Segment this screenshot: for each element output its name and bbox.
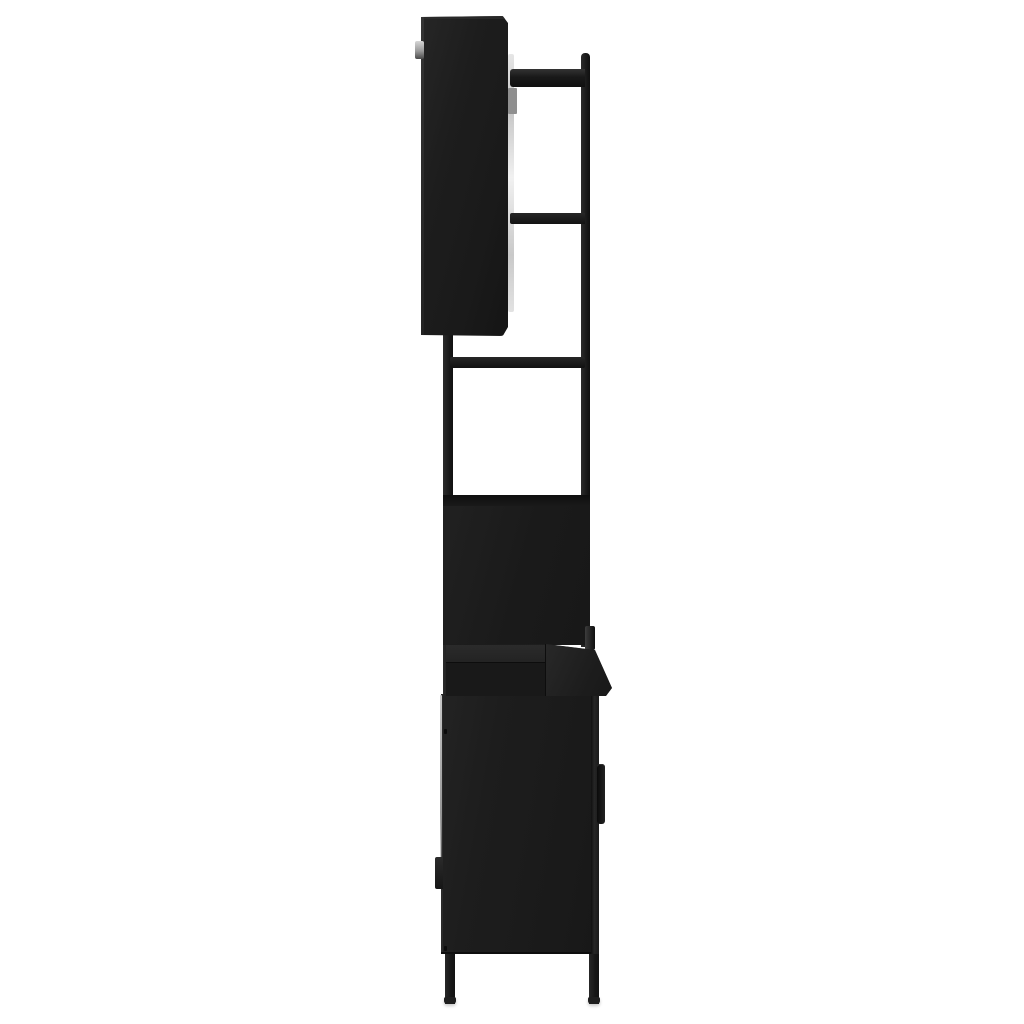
countertop-top-face: [446, 645, 546, 663]
door-handle: [597, 764, 605, 824]
leg-right: [589, 954, 599, 1004]
shelf-bar-middle: [510, 213, 585, 224]
base-cabinet-right-edge: [591, 694, 599, 954]
mirror-cabinet-top-sheen: [421, 16, 508, 19]
countertop-right-face: [546, 644, 614, 698]
door-hinge-notch: [435, 857, 443, 889]
leg-right-foot: [588, 997, 600, 1004]
mirror-cabinet: [421, 16, 508, 336]
mirror-hinge-tab: [415, 41, 424, 59]
hinge-pin-upper: [444, 729, 447, 734]
mirror-mount-bracket: [508, 88, 517, 114]
leg-left-foot: [444, 997, 456, 1004]
countertop-front-face: [446, 663, 546, 698]
countertop-wall-bracket: [585, 626, 595, 650]
open-compartment-shelf-lip: [443, 495, 590, 506]
product-photo-canvas: [0, 0, 1024, 1024]
leg-left: [445, 954, 455, 1004]
base-cabinet: [441, 694, 599, 954]
shelf-bar-lower: [450, 357, 585, 368]
open-compartment-back-panel: [443, 495, 590, 645]
mirror-cabinet-door-edge: [421, 16, 424, 336]
hinge-pin-lower: [444, 946, 447, 951]
countertop-slab: [444, 642, 614, 698]
shelf-bar-top: [510, 69, 585, 87]
